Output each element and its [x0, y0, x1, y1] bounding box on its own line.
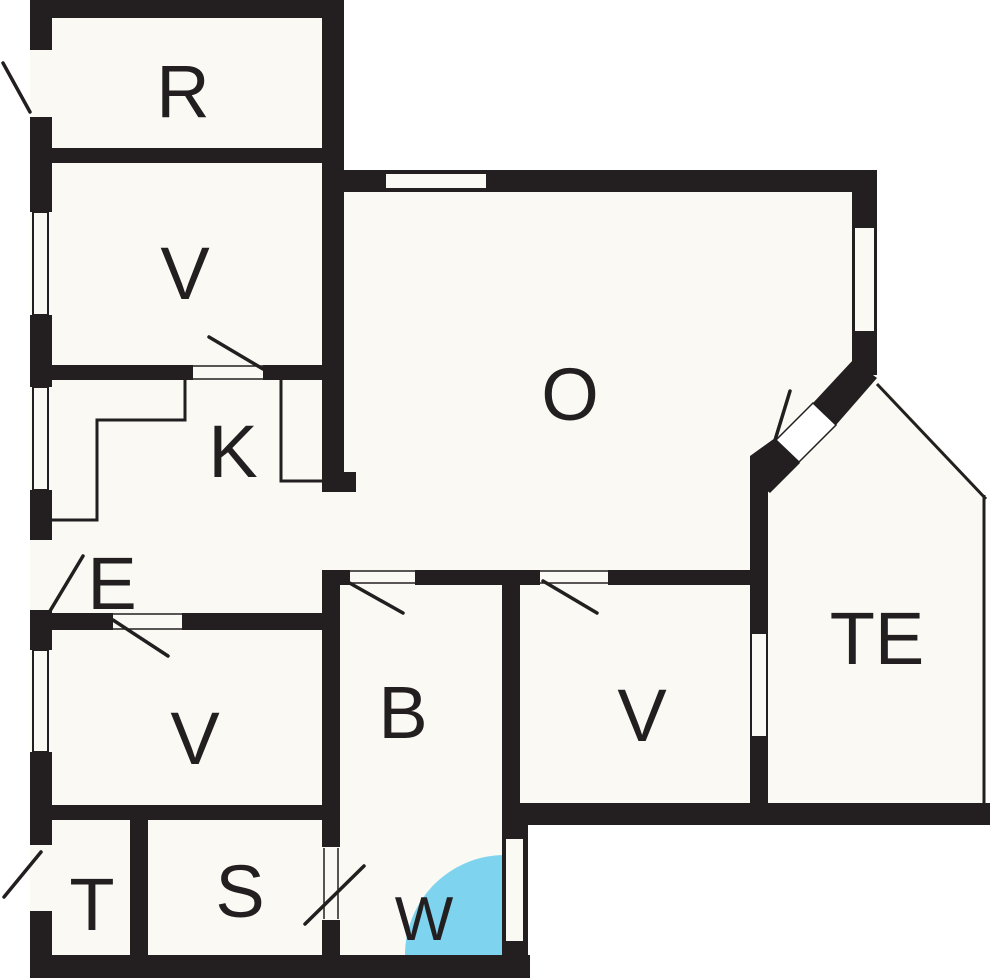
floorplan-svg: R V K E O TE V B V T S W — [0, 0, 1000, 978]
window-o-right — [854, 227, 875, 332]
wall-te-left-upper — [750, 478, 768, 633]
wall-o-bottom-seg3 — [608, 570, 750, 585]
wall-o-bottom-seg2 — [415, 570, 540, 585]
door-swing-r-exterior — [3, 63, 30, 112]
window-v-lower-left — [33, 650, 48, 752]
room-label-v-lower-left: V — [170, 697, 220, 780]
wall-t-s — [130, 818, 148, 955]
wall-left-seg4 — [30, 490, 52, 540]
room-label-o: O — [541, 353, 599, 436]
wall-v-left-bottom — [30, 805, 340, 820]
wall-spine — [322, 0, 344, 492]
wall-bottom-left-wing — [30, 955, 530, 978]
wall-e-bottom-right — [182, 613, 322, 630]
window-v-upper-left — [33, 212, 48, 315]
wall-left-seg1 — [30, 0, 52, 50]
room-label-v-upper: V — [160, 232, 210, 315]
wall-b-left-lower — [322, 920, 340, 955]
wall-v-k-left — [30, 365, 193, 380]
window-te-left — [751, 633, 767, 737]
room-label-b: B — [378, 671, 427, 754]
room-label-v-lower-right: V — [617, 674, 667, 757]
wall-left-seg6 — [30, 752, 52, 845]
wall-b-right-upper — [502, 570, 520, 803]
room-label-k: K — [208, 410, 257, 493]
wall-te-left-lower — [750, 737, 768, 807]
room-label-e: E — [87, 542, 136, 625]
floorplan-canvas: R V K E O TE V B V T S W — [0, 0, 1000, 978]
wall-spine-end — [322, 472, 356, 492]
window-o-top — [385, 173, 487, 189]
room-label-w: W — [395, 885, 454, 954]
wall-top-r — [30, 0, 344, 18]
wall-bottom-te — [502, 803, 990, 825]
window-k-left — [33, 387, 48, 490]
wall-r-v — [30, 148, 322, 163]
room-label-t: T — [69, 863, 114, 946]
room-label-te: TE — [830, 597, 925, 680]
room-label-s: S — [215, 850, 264, 933]
room-label-r: R — [156, 50, 209, 133]
window-w-right — [505, 838, 524, 942]
wall-left-seg2 — [30, 117, 52, 212]
wall-v-k-right — [263, 365, 322, 380]
